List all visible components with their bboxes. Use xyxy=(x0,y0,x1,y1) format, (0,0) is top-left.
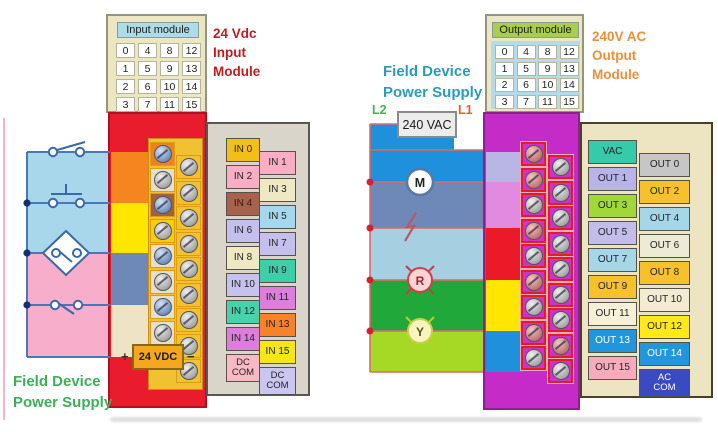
channel-label-chip: VAC xyxy=(588,140,637,164)
terminal-cell xyxy=(521,270,546,294)
channel-label-chip: DC COM xyxy=(226,354,260,382)
right-field-caption: Field Device Power Supply xyxy=(383,61,513,103)
screw-terminal-icon xyxy=(180,311,198,329)
terminal-cell xyxy=(176,206,201,230)
field-band-yellowgreen xyxy=(370,331,483,372)
channel-label-chip: IN 12 xyxy=(226,300,260,324)
address-grid-cell: 4 xyxy=(517,45,536,59)
channel-label-chip: IN 2 xyxy=(226,165,260,189)
input-terminal-column-left xyxy=(150,142,175,370)
channel-label-chip: AC COM xyxy=(639,369,690,397)
output-channel-column-odd: VACOUT 1OUT 3OUT 5OUT 7OUT 9OUT 11OUT 13… xyxy=(588,140,637,380)
address-grid-cell: 6 xyxy=(517,78,536,92)
left-caption-line2: Power Supply xyxy=(13,392,143,413)
channel-label-chip: OUT 11 xyxy=(588,302,637,326)
input-channel-column-odd: IN 1IN 3IN 5IN 7IN 9IN 11IN 13IN 15DC CO… xyxy=(259,151,296,395)
terminal-cell xyxy=(521,295,546,319)
output-module-name-label: Output module xyxy=(492,22,579,38)
address-grid-cell: 15 xyxy=(560,95,579,109)
address-grid-cell: 2 xyxy=(116,79,135,94)
terminal-cell xyxy=(176,155,201,179)
routing-block-orange xyxy=(111,152,150,203)
channel-label-chip: OUT 10 xyxy=(639,288,690,312)
routing-block-blue xyxy=(486,331,522,372)
address-grid-cell: 3 xyxy=(116,97,135,112)
address-grid-cell: 12 xyxy=(182,43,201,58)
address-grid-cell: 1 xyxy=(116,61,135,76)
terminal-cell xyxy=(150,295,175,319)
screw-terminal-icon xyxy=(180,158,198,176)
address-grid-cell: 13 xyxy=(560,62,579,76)
screw-terminal-icon xyxy=(525,349,543,367)
channel-label-chip: IN 7 xyxy=(259,232,296,256)
terminal-cell xyxy=(150,219,175,243)
channel-label-chip: IN 6 xyxy=(226,219,260,243)
terminal-cell xyxy=(548,359,573,383)
screw-terminal-icon xyxy=(552,235,570,253)
terminal-cell xyxy=(176,308,201,332)
address-grid-cell: 14 xyxy=(182,79,201,94)
screw-terminal-icon xyxy=(180,260,198,278)
address-grid-cell: 7 xyxy=(138,97,157,112)
phase-l2-label: L2 xyxy=(372,103,387,117)
terminal-cell xyxy=(521,321,546,345)
input-module-header: Input module 0481215913261014371115 xyxy=(106,14,207,113)
address-grid-cell: 15 xyxy=(182,97,201,112)
phase-l1-label: L1 xyxy=(458,103,473,117)
right-caption-line2: Power Supply xyxy=(383,82,513,103)
channel-label-chip: OUT 2 xyxy=(639,180,690,204)
screw-terminal-icon xyxy=(552,337,570,355)
channel-label-chip: OUT 8 xyxy=(639,261,690,285)
channel-label-chip: IN 11 xyxy=(259,286,296,310)
channel-label-chip: IN 9 xyxy=(259,259,296,283)
screw-terminal-icon xyxy=(525,298,543,316)
address-grid-cell: 4 xyxy=(138,43,157,58)
routing-block-slate xyxy=(111,253,150,305)
channel-label-chip: OUT 13 xyxy=(588,329,637,353)
channel-label-chip: OUT 14 xyxy=(639,342,690,366)
screw-terminal-icon xyxy=(154,298,172,316)
drop-shadow xyxy=(110,417,702,422)
channel-label-chip: OUT 7 xyxy=(588,248,637,272)
screw-terminal-icon xyxy=(154,222,172,240)
terminal-cell xyxy=(548,206,573,230)
channel-label-chip: IN 14 xyxy=(226,327,260,351)
address-grid-cell: 11 xyxy=(538,95,557,109)
screw-terminal-icon xyxy=(552,362,570,380)
channel-label-chip: IN 8 xyxy=(226,246,260,270)
screw-terminal-icon xyxy=(180,209,198,227)
channel-label-chip: OUT 0 xyxy=(639,153,690,177)
terminal-cell xyxy=(176,232,201,256)
screw-terminal-icon xyxy=(154,247,172,265)
address-grid-cell: 8 xyxy=(160,43,179,58)
screw-terminal-icon xyxy=(552,158,570,176)
address-grid-cell: 13 xyxy=(182,61,201,76)
terminal-cell xyxy=(521,244,546,268)
address-grid-cell: 10 xyxy=(538,78,557,92)
channel-label-chip: IN 10 xyxy=(226,273,260,297)
screw-terminal-icon xyxy=(525,247,543,265)
terminal-cell xyxy=(150,270,175,294)
channel-label-chip: OUT 12 xyxy=(639,315,690,339)
screw-terminal-icon xyxy=(154,145,172,163)
address-grid-cell: 6 xyxy=(138,79,157,94)
screw-terminal-icon xyxy=(154,196,172,214)
input-title-line1: 24 Vdc xyxy=(213,24,308,43)
screw-terminal-icon xyxy=(525,196,543,214)
left-caption-line1: Field Device xyxy=(13,371,143,392)
address-grid-cell: 11 xyxy=(160,97,179,112)
screw-terminal-icon xyxy=(552,209,570,227)
address-grid-cell: 7 xyxy=(517,95,536,109)
output-title-line1: 240V AC xyxy=(592,27,692,46)
terminal-cell xyxy=(548,308,573,332)
plc-io-wiring-diagram: Input module 0481215913261014371115 24 V… xyxy=(0,0,718,432)
channel-label-chip: IN 13 xyxy=(259,313,296,337)
field-band-lightblue xyxy=(27,152,112,253)
screw-terminal-icon xyxy=(525,145,543,163)
terminal-cell xyxy=(521,219,546,243)
terminal-cell xyxy=(150,244,175,268)
screw-terminal-icon xyxy=(525,324,543,342)
output-title-line2: Output xyxy=(592,46,692,65)
input-title-line3: Module xyxy=(213,62,308,81)
screw-terminal-icon xyxy=(154,324,172,342)
output-terminal-column-right xyxy=(548,155,573,383)
terminal-cell xyxy=(548,283,573,307)
channel-label-chip: OUT 6 xyxy=(639,234,690,258)
input-module-title: 24 Vdc Input Module xyxy=(213,24,308,81)
routing-block-yellow2 xyxy=(486,280,522,331)
terminal-cell xyxy=(150,193,175,217)
address-grid-cell: 8 xyxy=(538,45,557,59)
address-grid-cell: 14 xyxy=(560,78,579,92)
field-band-pink xyxy=(27,253,112,357)
screw-terminal-icon xyxy=(180,235,198,253)
supply-minus-sign: − xyxy=(187,349,195,364)
channel-label-chip: DC COM xyxy=(259,367,296,395)
screw-terminal-icon xyxy=(525,273,543,291)
field-band-lightblue2 xyxy=(370,228,483,280)
screw-terminal-icon xyxy=(180,286,198,304)
right-caption-line1: Field Device xyxy=(383,61,513,82)
address-grid-cell: 12 xyxy=(560,45,579,59)
terminal-cell xyxy=(548,232,573,256)
supply-plus-sign: + xyxy=(121,349,129,364)
field-band-blue xyxy=(370,150,483,182)
channel-label-chip: IN 1 xyxy=(259,151,296,175)
screw-terminal-icon xyxy=(525,222,543,240)
dc-supply-box: 24 VDC xyxy=(132,344,184,370)
channel-label-chip: OUT 3 xyxy=(588,194,637,218)
channel-label-chip: OUT 9 xyxy=(588,275,637,299)
channel-label-chip: OUT 1 xyxy=(588,167,637,191)
terminal-cell xyxy=(548,334,573,358)
input-title-line2: Input xyxy=(213,43,308,62)
ac-supply-box: 240 VAC xyxy=(397,111,457,138)
terminal-cell xyxy=(521,168,546,192)
screw-terminal-icon xyxy=(552,311,570,329)
address-grid-cell: 9 xyxy=(160,61,179,76)
terminal-cell xyxy=(521,142,546,166)
address-grid-cell: 0 xyxy=(495,45,514,59)
channel-label-chip: IN 3 xyxy=(259,178,296,202)
channel-label-chip: IN 4 xyxy=(226,192,260,216)
terminal-cell xyxy=(150,142,175,166)
address-grid-cell: 0 xyxy=(116,43,135,58)
screw-terminal-icon xyxy=(180,184,198,202)
channel-label-chip: OUT 4 xyxy=(639,207,690,231)
input-address-grid: 0481215913261014371115 xyxy=(116,43,201,112)
screw-terminal-icon xyxy=(552,286,570,304)
terminal-cell xyxy=(548,257,573,281)
routing-block-violet xyxy=(486,182,522,228)
address-grid-cell: 5 xyxy=(517,62,536,76)
channel-label-chip: OUT 15 xyxy=(588,356,637,380)
terminal-cell xyxy=(521,346,546,370)
screw-terminal-icon xyxy=(525,171,543,189)
switch-blade xyxy=(57,142,85,150)
address-grid-cell: 9 xyxy=(538,62,557,76)
channel-label-chip: IN 0 xyxy=(226,138,260,162)
screw-terminal-icon xyxy=(154,273,172,291)
terminal-cell xyxy=(150,321,175,345)
channel-label-chip: OUT 5 xyxy=(588,221,637,245)
routing-block-yellow xyxy=(111,203,150,253)
terminal-cell xyxy=(548,181,573,205)
channel-label-chip: IN 15 xyxy=(259,340,296,364)
routing-block-red xyxy=(486,228,522,280)
output-terminal-column-left xyxy=(521,142,546,370)
terminal-cell xyxy=(548,155,573,179)
output-module-title: 240V AC Output Module xyxy=(592,27,692,84)
screw-terminal-icon xyxy=(154,171,172,189)
screw-terminal-icon xyxy=(552,184,570,202)
address-grid-cell: 5 xyxy=(138,61,157,76)
output-channel-column-even: OUT 0OUT 2OUT 4OUT 6OUT 8OUT 10OUT 12OUT… xyxy=(639,153,690,397)
terminal-cell xyxy=(176,283,201,307)
terminal-cell xyxy=(521,193,546,217)
screw-terminal-icon xyxy=(552,260,570,278)
left-field-caption: Field Device Power Supply xyxy=(13,371,143,413)
field-band-slate xyxy=(370,182,483,228)
terminal-cell xyxy=(176,181,201,205)
page-edge-line xyxy=(3,118,5,420)
input-channel-column-even: IN 0IN 2IN 4IN 6IN 8IN 10IN 12IN 14DC CO… xyxy=(226,138,260,382)
terminal-cell xyxy=(176,257,201,281)
address-grid-cell: 10 xyxy=(160,79,179,94)
input-module-name-label: Input module xyxy=(117,22,199,38)
output-title-line3: Module xyxy=(592,65,692,84)
terminal-cell xyxy=(150,168,175,192)
field-band-green xyxy=(370,280,483,331)
routing-block-lavender xyxy=(486,152,522,182)
channel-label-chip: IN 5 xyxy=(259,205,296,229)
